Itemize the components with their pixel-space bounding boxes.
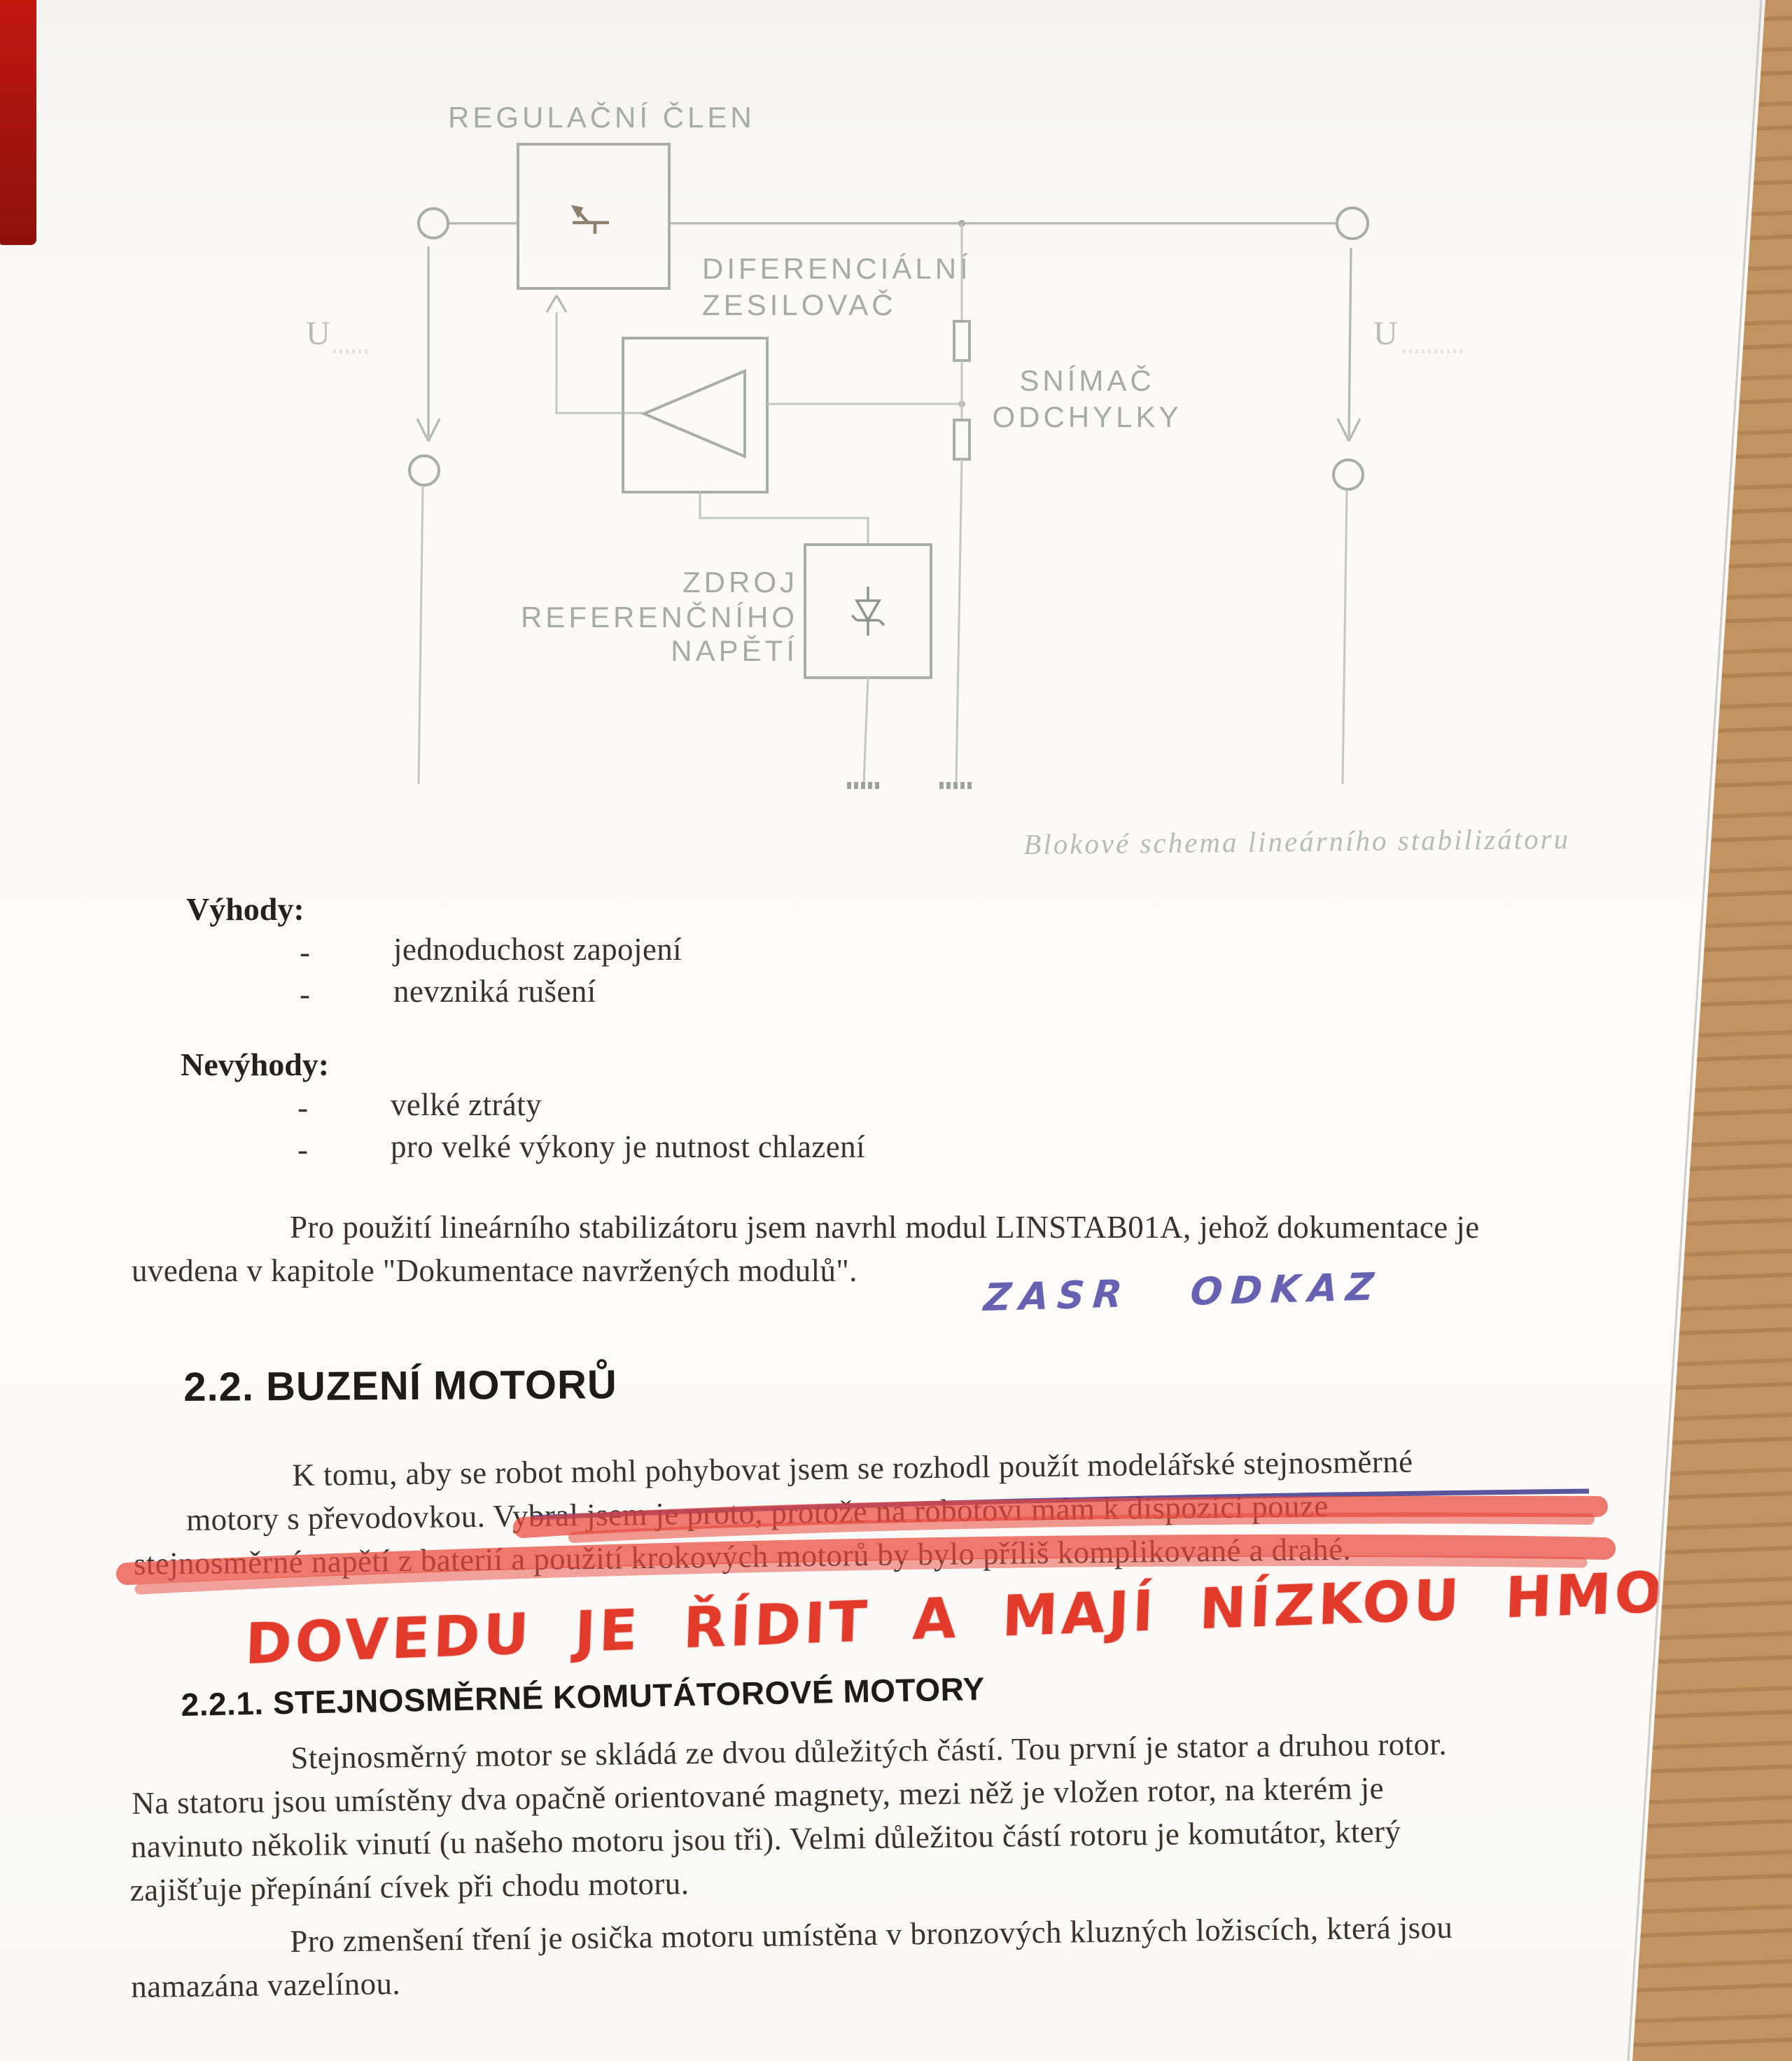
input-terminal-top: [419, 209, 448, 238]
regulator-box: [518, 144, 669, 288]
output-voltage-arrow: [1349, 248, 1351, 437]
red-edge-strip: [0, 0, 36, 245]
list-item: nevzniká rušení: [393, 973, 596, 1009]
figure-caption: Blokové schema lineárního stabilizátoru: [1023, 822, 1570, 861]
output-voltage-label: U: [1373, 315, 1398, 352]
scanned-document-page: REGULAČNÍ ČLEN U U DIFERENCIÁ: [0, 0, 1792, 2061]
diff-amp-label-line1: DIFERENCIÁLNÍ: [702, 252, 972, 285]
paragraph-line: Pro použití lineárního stabilizátoru jse…: [183, 1206, 1480, 1249]
wire: [556, 312, 643, 413]
disadvantages-heading: Nevýhody:: [181, 1046, 329, 1083]
wire: [956, 459, 962, 783]
resistor-upper: [954, 321, 969, 361]
output-terminal-bottom: [1333, 460, 1363, 489]
list-bullet: -: [297, 1089, 308, 1126]
list-item: jednoduchost zapojení: [393, 931, 682, 967]
input-voltage-label: U: [306, 315, 330, 352]
reference-label-line2: REFERENČNÍHO: [521, 601, 798, 634]
list-item: velké ztráty: [391, 1087, 542, 1123]
zener-diode-icon: [852, 587, 884, 636]
list-bullet: -: [300, 934, 310, 970]
regulator-label: REGULAČNÍ ČLEN: [448, 101, 755, 134]
section-2-2-heading: 2.2. BUZENÍ MOTORŮ: [183, 1361, 617, 1411]
paragraph-dc-motor: Stejnosměrný motor se skládá ze dvou důl…: [184, 1722, 1449, 1911]
paragraph-bearings: Pro zmenšení tření je osička motoru umís…: [183, 1906, 1453, 2008]
section-2-2-1-heading: 2.2.1. STEJNOSMĚRNÉ KOMUTÁTOROVÉ MOTORY: [181, 1670, 985, 1724]
paragraph-text: motory s převodovkou.: [186, 1499, 493, 1537]
paragraph-motors: K tomu, aby se robot mohl pohybovat jsem…: [185, 1440, 1414, 1585]
output-terminal-top: [1337, 208, 1368, 239]
diff-amp-label-line2: ZESILOVAČ: [702, 288, 897, 321]
reference-label-line1: ZDROJ: [682, 566, 798, 599]
wire: [1343, 490, 1347, 784]
list-bullet: -: [297, 1131, 308, 1168]
wire: [419, 486, 423, 784]
wire: [864, 678, 868, 783]
block-diagram: REGULAČNÍ ČLEN U U DIFERENCIÁ: [0, 0, 1792, 889]
reference-label-line3: NAPĚTÍ: [671, 634, 798, 667]
arrowhead-up-icon: [547, 295, 566, 312]
wire: [700, 492, 868, 545]
struck-text: Vybral jsem je proto, protože na robotov…: [493, 1488, 1329, 1534]
sensor-label-line2: ODCHYLKY: [992, 400, 1182, 433]
input-terminal-bottom: [409, 456, 439, 485]
list-bullet: -: [300, 976, 310, 1012]
reference-box: [805, 545, 931, 678]
resistor-lower: [954, 420, 969, 459]
advantages-heading: Výhody:: [186, 890, 304, 928]
opamp-triangle-icon: [644, 371, 745, 456]
sensor-label-line1: SNÍMAČ: [1019, 364, 1154, 397]
list-item: pro velké výkony je nutnost chlazení: [391, 1129, 865, 1165]
transistor-icon: [573, 207, 609, 234]
